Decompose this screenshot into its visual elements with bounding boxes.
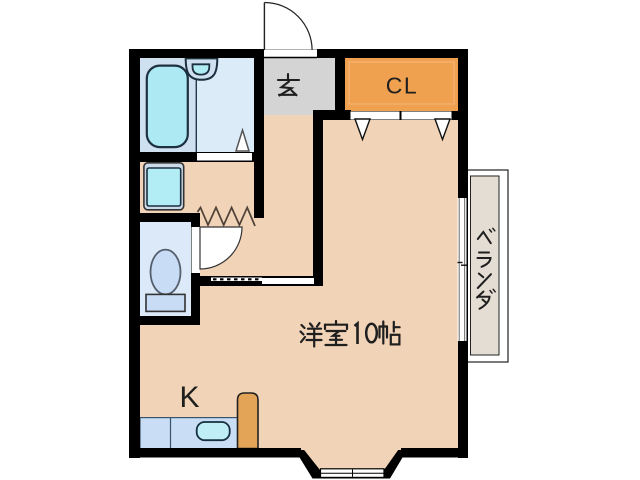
svg-text:CL: CL [386, 73, 418, 99]
svg-text:K: K [179, 381, 199, 414]
